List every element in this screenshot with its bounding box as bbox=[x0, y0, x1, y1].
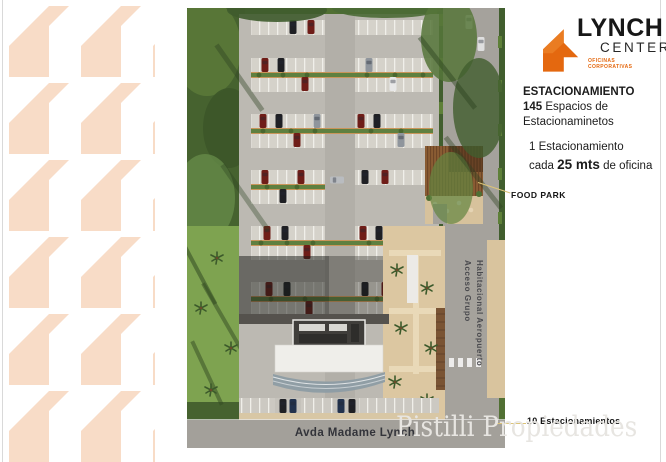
logo-subtitle: CENTER bbox=[600, 41, 666, 55]
houndstooth-svg bbox=[3, 0, 155, 462]
logo-tagline-line2: CORPORATIVAS bbox=[588, 64, 666, 70]
ratio-line1: 1 Estacionamiento bbox=[529, 139, 661, 156]
site-plan-render: Avda Madame Lynch Acceso Grupo Habitacio… bbox=[187, 8, 505, 448]
watermark: Pistilli Propiedades bbox=[396, 410, 637, 443]
access-road-label-line1: Acceso Grupo bbox=[463, 260, 472, 322]
ratio-line2: cada 25 mts de oficina bbox=[529, 156, 661, 175]
houndstooth-pattern bbox=[3, 0, 155, 462]
parking-title: ESTACIONAMIENTO bbox=[523, 85, 655, 100]
building-shadow bbox=[239, 256, 329, 322]
flyer-slide: Avda Madame Lynch Acceso Grupo Habitacio… bbox=[0, 0, 666, 462]
logo-arrow-icon bbox=[535, 21, 583, 79]
car bbox=[478, 37, 485, 51]
parking-info: ESTACIONAMIENTO 145 Espacios de Estacion… bbox=[523, 85, 655, 130]
parking-count-line: 145 Espacios de bbox=[523, 100, 655, 115]
parking-count-line2: Estacionaminetos bbox=[523, 115, 655, 130]
access-road-label-line2: Habitacional Aeropuerto bbox=[475, 260, 484, 366]
lynch-center-logo: LYNCH CENTER OFICINAS CORPORATIVAS bbox=[535, 15, 666, 79]
site-plan-art bbox=[187, 8, 505, 448]
plaza bbox=[383, 204, 447, 420]
parking-ratio-note: 1 Estacionamiento cada 25 mts de oficina bbox=[529, 139, 661, 175]
food-park-label: FOOD PARK bbox=[511, 190, 566, 200]
logo-name: LYNCH bbox=[577, 15, 666, 41]
